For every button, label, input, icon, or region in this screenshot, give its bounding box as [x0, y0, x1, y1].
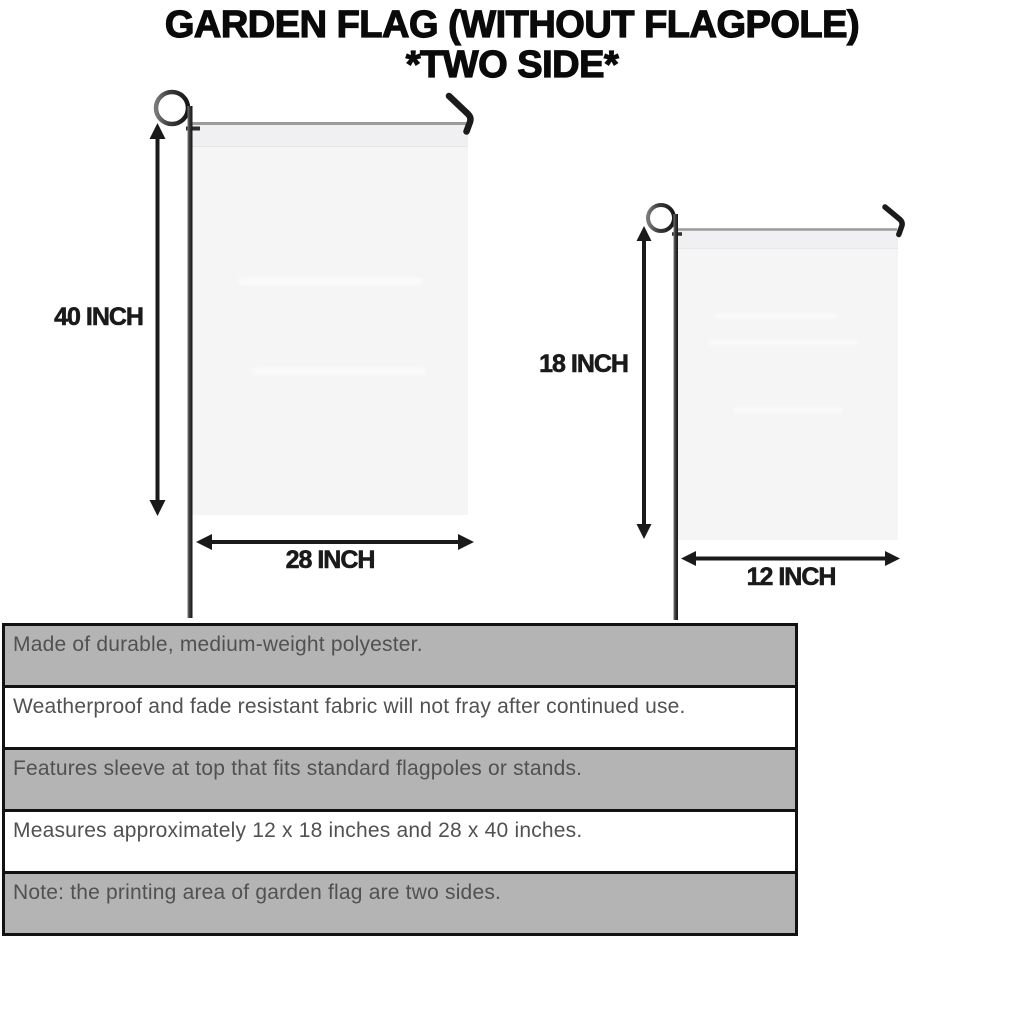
flag-sleeve-large	[192, 122, 468, 147]
double-arrow-icon	[637, 226, 652, 241]
spec-row-note: Note: the printing area of garden flag a…	[5, 874, 795, 933]
double-arrow-icon	[196, 534, 212, 550]
product-diagram-page: GARDEN FLAG (WITHOUT FLAGPOLE) *TWO SIDE…	[0, 0, 1024, 1024]
fabric-crease	[733, 408, 843, 413]
spec-row-measures: Measures approximately 12 x 18 inches an…	[5, 812, 795, 874]
height-arrow-small	[637, 226, 652, 539]
double-arrow-icon	[637, 524, 652, 539]
fabric-crease	[716, 313, 836, 319]
fabric-crease	[252, 368, 427, 374]
double-arrow-icon	[150, 123, 166, 139]
fabric-crease	[708, 340, 858, 345]
fabric-crease	[238, 278, 423, 285]
double-arrow-icon	[458, 534, 474, 550]
spec-row-material: Made of durable, medium-weight polyester…	[5, 626, 795, 688]
double-arrow-icon	[885, 551, 900, 566]
spec-table: Made of durable, medium-weight polyester…	[2, 623, 798, 936]
page-title-line1: GARDEN FLAG (WITHOUT FLAGPOLE)	[0, 5, 1024, 45]
flagpole-loop-icon	[156, 92, 188, 124]
page-title-line2: *TWO SIDE*	[0, 45, 1024, 85]
page-title: GARDEN FLAG (WITHOUT FLAGPOLE) *TWO SIDE…	[0, 5, 1024, 85]
double-arrow-icon	[150, 500, 166, 516]
double-arrow-icon	[681, 551, 696, 566]
flagpole-loop-icon	[648, 205, 674, 231]
flag-panel-small	[678, 228, 898, 540]
flag-sleeve-small	[678, 228, 898, 249]
small-flag-height-label: 18 INCH	[528, 351, 628, 377]
spec-row-sleeve: Features sleeve at top that fits standar…	[5, 750, 795, 812]
large-flag-height-label: 40 INCH	[43, 304, 143, 330]
large-flag-width-label: 28 INCH	[255, 547, 405, 573]
flag-panel-large	[192, 122, 468, 515]
spec-row-weatherproof: Weatherproof and fade resistant fabric w…	[5, 688, 795, 750]
small-flag-width-label: 12 INCH	[716, 564, 866, 590]
height-arrow-large	[150, 123, 166, 516]
